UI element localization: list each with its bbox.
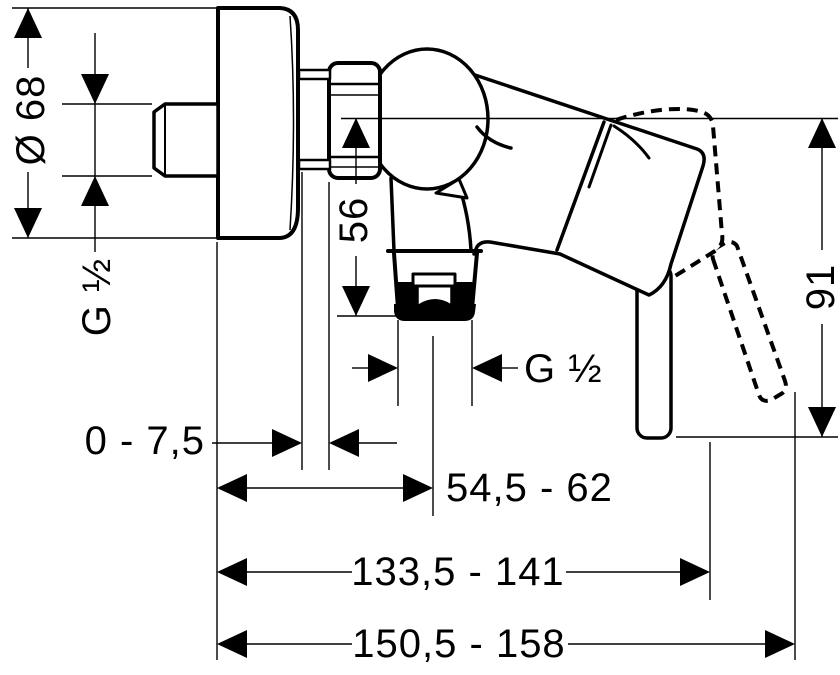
label-axis-to-outlet: 56 <box>332 197 376 244</box>
label-axis-to-lever-tip: 91 <box>799 264 840 311</box>
dim-wall-to-lever-open: 150,5 - 158 <box>217 392 795 666</box>
label-outlet-thread: G ½ <box>524 347 603 391</box>
wall-thread-outline <box>154 104 218 176</box>
shower-mixer-dimension-drawing: Ø 68 G ½ 56 G ½ 0 - 7,5 <box>0 0 840 675</box>
label-wall-clearance: 0 - 7,5 <box>85 419 205 463</box>
connection-flange <box>299 70 330 169</box>
dim-wall-thread: G ½ <box>62 33 152 336</box>
union-nut-body <box>329 63 380 178</box>
escutcheon-outline <box>218 8 298 238</box>
label-wall-to-lever-open: 150,5 - 158 <box>352 622 565 666</box>
label-wall-to-lever-closed: 133,5 - 141 <box>351 550 564 594</box>
outlet-connector <box>388 251 481 321</box>
label-wall-thread: G ½ <box>75 258 119 337</box>
label-escutcheon-diameter: Ø 68 <box>9 75 53 166</box>
handle-open-lever <box>713 242 786 401</box>
escutcheon-plate <box>218 8 298 238</box>
label-wall-to-outlet-axis: 54,5 - 62 <box>446 466 613 510</box>
union-nut <box>329 63 380 178</box>
drawing-canvas: Ø 68 G ½ 56 G ½ 0 - 7,5 <box>0 0 840 675</box>
wall-thread-connector <box>154 104 218 176</box>
